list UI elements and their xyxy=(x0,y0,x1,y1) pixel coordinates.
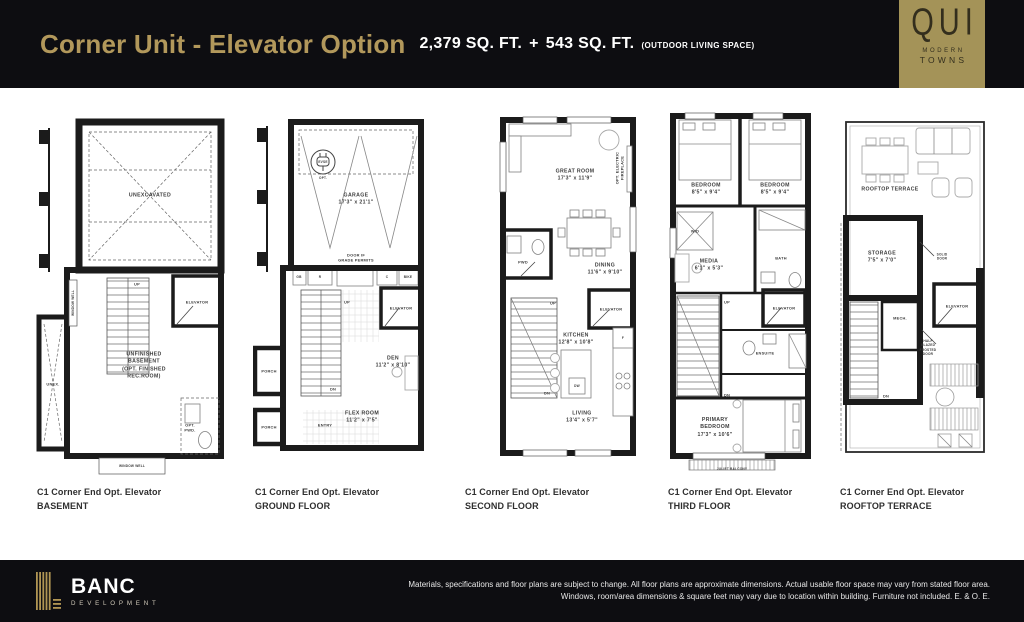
qui-modern-towns-logo: QUI MODERN TOWNS xyxy=(899,0,985,88)
label-rooftop-terrace: ROOFTOP TERRACE xyxy=(861,186,918,193)
label-primary-bedroom: PRIMARY BEDROOM 17'3" x 10'6" xyxy=(697,417,732,439)
label-elevator: ELEVATOR xyxy=(186,299,209,304)
caption-basement-line2: BASEMENT xyxy=(37,500,161,514)
label-fridge: F xyxy=(622,336,624,340)
label-dw: DW xyxy=(574,384,580,388)
rooftop-stairs xyxy=(850,302,878,398)
label-elevator: ELEVATOR xyxy=(773,305,796,310)
caption-ground-line1: C1 Corner End Opt. Elevator xyxy=(255,486,379,500)
label-up: UP xyxy=(724,299,730,304)
area-summary: 2,379 SQ. FT. + 543 SQ. FT. (OUTDOOR LIV… xyxy=(419,35,754,53)
label-entry: ENTRY xyxy=(318,422,332,427)
bed-1 xyxy=(679,120,731,180)
label-unex: UNEX. xyxy=(46,381,59,386)
label-living: LIVING 13'4" x 5'7" xyxy=(566,411,598,426)
label-bike: BIKE xyxy=(404,275,412,279)
label-mech: MECH. xyxy=(893,315,907,320)
label-juliet-balcony: JULIET BALCONY xyxy=(717,467,747,471)
label-elevator: ELEVATOR xyxy=(946,303,969,308)
label-dn: DN xyxy=(883,393,889,398)
label-bath: BATH xyxy=(775,255,787,260)
label-c: C xyxy=(386,275,389,279)
caption-ground-line2: GROUND FLOOR xyxy=(255,500,379,514)
area-main: 2,379 SQ. FT. xyxy=(419,35,522,53)
label-great-room: GREAT ROOM 17'3" x 11'9" xyxy=(556,169,595,184)
ground-drawing xyxy=(253,112,443,484)
footer: BANC DEVELOPMENT Materials, specificatio… xyxy=(0,560,1024,622)
page-title: Corner Unit - Elevator Option xyxy=(40,29,405,60)
label-pwd: PWD xyxy=(518,259,528,264)
label-unexcavated: UNEXCAVATED xyxy=(129,192,171,199)
floorplan-third: BEDROOM 8'5" x 9'4" BEDROOM 8'5" x 9'4" … xyxy=(665,108,840,486)
caption-third: C1 Corner End Opt. Elevator THIRD FLOOR xyxy=(668,486,792,513)
label-door-note: DOOR IF GRADE PERMITS xyxy=(338,253,374,264)
label-bedroom1: BEDROOM 8'5" x 9'4" xyxy=(691,183,721,198)
label-opt: OPT. xyxy=(319,176,327,180)
label-garage: GARAGE 17'3" x 21'1" xyxy=(338,193,373,208)
label-dn: DN xyxy=(330,386,336,391)
label-elevator: ELEVATOR xyxy=(390,305,413,310)
caption-rooftop-line1: C1 Corner End Opt. Elevator xyxy=(840,486,964,500)
caption-ground: C1 Corner End Opt. Elevator GROUND FLOOR xyxy=(255,486,379,513)
label-ensuite: ENSUITE xyxy=(756,350,775,355)
header: Corner Unit - Elevator Option 2,379 SQ. … xyxy=(0,0,1024,88)
floorplan-rooftop: ROOFTOP TERRACE STORAGE 7'5" x 7'0" SOLI… xyxy=(838,108,1013,486)
label-wd: W/D xyxy=(691,228,699,233)
disclaimer: Materials, specifications and floor plan… xyxy=(408,579,990,604)
pwd-room xyxy=(503,230,551,278)
banc-development-logo: BANC DEVELOPMENT xyxy=(36,572,160,610)
label-den: DEN 11'2" x 8'10" xyxy=(376,356,411,371)
floorplan-basement: UNEXCAVATED UP ELEVATOR WINDOW WELL UNFI… xyxy=(35,112,231,484)
caption-basement-line1: C1 Corner End Opt. Elevator xyxy=(37,486,161,500)
caption-second-line1: C1 Corner End Opt. Elevator xyxy=(465,486,589,500)
plus-sign: + xyxy=(529,35,539,53)
disclaimer-line1: Materials, specifications and floor plan… xyxy=(408,579,990,591)
caption-second-line2: SECOND FLOOR xyxy=(465,500,589,514)
label-window-well-bottom: WINDOW WELL xyxy=(119,464,145,468)
qui-logo-sub2: TOWNS xyxy=(920,55,967,65)
caption-second: C1 Corner End Opt. Elevator SECOND FLOOR xyxy=(465,486,589,513)
dining-table xyxy=(558,210,620,256)
label-window-well-side: WINDOW WELL xyxy=(71,290,75,316)
label-up: UP xyxy=(344,299,350,304)
label-unfinished-basement: UNFINISHED BASEMENT (OPT. FINISHED REC.R… xyxy=(122,351,166,380)
second-stairs xyxy=(511,298,557,398)
label-porch2: PORCH xyxy=(261,424,276,429)
louvre-planters xyxy=(930,364,978,447)
bed-2 xyxy=(749,120,801,180)
bath-fixtures xyxy=(759,210,805,288)
label-flex-room: FLEX ROOM 11'2" x 7'5" xyxy=(345,411,379,426)
label-evse: EVSE xyxy=(318,160,327,164)
disclaimer-line2: Windows, room/area dimensions & square f… xyxy=(408,591,990,603)
label-half-glazed-door: HALF GLAZED FROSTED DOOR xyxy=(920,339,937,357)
ground-stairs xyxy=(301,290,341,396)
label-kitchen: KITCHEN 12'8" x 10'8" xyxy=(558,333,593,348)
label-up: UP xyxy=(550,300,556,305)
rooftop-drawing xyxy=(838,108,1013,486)
area-note: (OUTDOOR LIVING SPACE) xyxy=(641,41,754,50)
label-fireplace: OPT. ELECTRIC FIREPLACE xyxy=(615,152,626,184)
label-solid-door: SOLID DOOR xyxy=(937,253,948,262)
floorplan-second: GREAT ROOM 17'3" x 11'9" OPT. ELECTRIC F… xyxy=(463,112,653,484)
caption-rooftop: C1 Corner End Opt. Elevator ROOFTOP TERR… xyxy=(840,486,964,513)
caption-basement: C1 Corner End Opt. Elevator BASEMENT xyxy=(37,486,161,513)
label-bedroom2: BEDROOM 8'5" x 9'4" xyxy=(760,183,790,198)
basement-drawing xyxy=(35,112,231,484)
banc-subtitle: DEVELOPMENT xyxy=(71,600,160,607)
qui-logo-text: QUI xyxy=(911,2,978,45)
caption-third-line1: C1 Corner End Opt. Elevator xyxy=(668,486,792,500)
label-dn: DN xyxy=(544,390,550,395)
label-up: UP xyxy=(134,281,140,286)
label-r: R xyxy=(319,275,322,279)
label-elevator: ELEVATOR xyxy=(600,306,623,311)
label-porch1: PORCH xyxy=(261,368,276,373)
qui-logo-sub1: MODERN xyxy=(922,48,964,54)
label-storage: STORAGE 7'5" x 7'0" xyxy=(868,251,897,266)
area-outdoor: 543 SQ. FT. xyxy=(546,35,635,53)
primary-bed xyxy=(733,400,801,452)
third-stairs xyxy=(677,296,719,396)
label-media: MEDIA 6'1" x 5'3" xyxy=(695,259,724,274)
caption-rooftop-line2: ROOFTOP TERRACE xyxy=(840,500,964,514)
third-drawing xyxy=(665,108,840,486)
caption-third-line2: THIRD FLOOR xyxy=(668,500,792,514)
banc-bars-icon xyxy=(36,572,63,610)
label-gb: GB xyxy=(296,275,301,279)
banc-name: BANC xyxy=(71,576,160,597)
floorplan-ground: EVSE OPT. GARAGE 17'3" x 21'1" DOOR IF G… xyxy=(253,112,443,484)
label-dining: DINING 11'6" x 9'10" xyxy=(588,263,623,278)
label-dn: DN xyxy=(724,392,730,397)
label-opt-pwd: OPT. PWD. xyxy=(184,423,195,434)
